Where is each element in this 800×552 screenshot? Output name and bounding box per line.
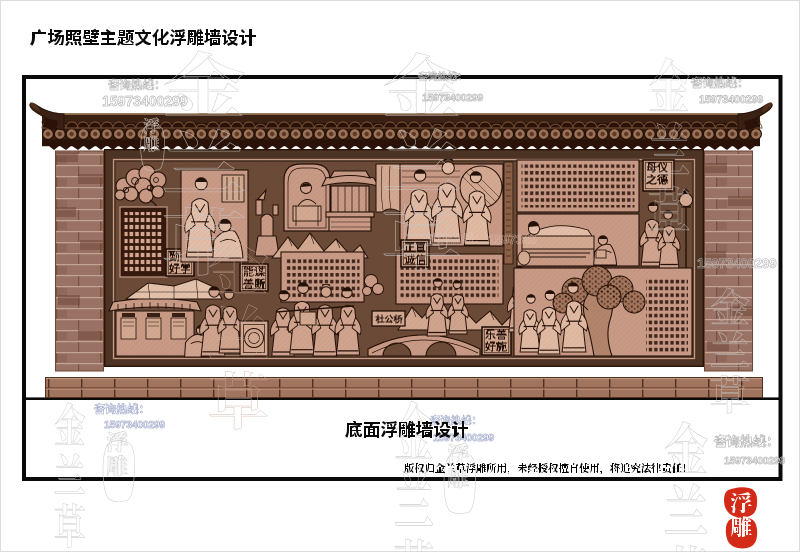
svg-text:15973400299: 15973400299 [102, 94, 188, 110]
svg-text:1597340: 1597340 [488, 232, 537, 247]
svg-text:15973400299: 15973400299 [697, 256, 776, 271]
svg-text:15973400299: 15973400299 [422, 92, 483, 104]
svg-text:15973400299: 15973400299 [104, 419, 165, 431]
svg-text:15973400299: 15973400299 [699, 94, 763, 106]
svg-text:15973400299: 15973400299 [724, 455, 785, 467]
